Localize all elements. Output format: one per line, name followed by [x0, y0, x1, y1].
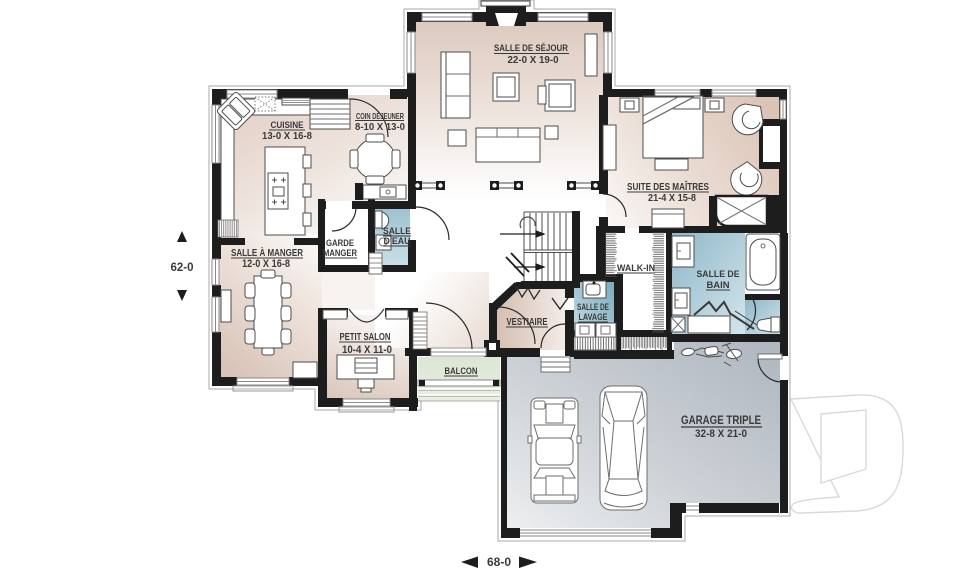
svg-text:SUITE DES MAÎTRES: SUITE DES MAÎTRES: [627, 180, 709, 193]
svg-text:22-0 X 19-0: 22-0 X 19-0: [508, 55, 559, 66]
svg-text:68-0: 68-0: [487, 555, 511, 569]
svg-text:WALK-IN: WALK-IN: [617, 263, 655, 274]
svg-text:VESTIAIRE: VESTIAIRE: [507, 317, 548, 328]
svg-text:PETIT SALON: PETIT SALON: [340, 332, 391, 343]
svg-text:10-4 X 11-0: 10-4 X 11-0: [342, 344, 392, 356]
svg-text:GARDE: GARDE: [326, 238, 354, 248]
svg-text:MANGER: MANGER: [323, 248, 357, 258]
svg-text:32-8 X 21-0: 32-8 X 21-0: [695, 428, 747, 440]
svg-text:SALLE DE: SALLE DE: [697, 269, 740, 280]
svg-text:SALLE: SALLE: [383, 226, 411, 236]
svg-text:21-4 X 15-8: 21-4 X 15-8: [648, 193, 696, 204]
svg-text:D'EAU: D'EAU: [384, 236, 411, 246]
svg-text:BALCON: BALCON: [445, 366, 478, 377]
svg-text:12-0 X 16-8: 12-0 X 16-8: [242, 258, 290, 270]
svg-text:BAIN: BAIN: [707, 280, 730, 291]
svg-text:COIN DÉJEUNER: COIN DÉJEUNER: [356, 111, 404, 121]
svg-text:SALLE DE SÉJOUR: SALLE DE SÉJOUR: [494, 43, 568, 54]
svg-text:SALLE DE: SALLE DE: [577, 302, 609, 312]
svg-text:13-0 X 16-8: 13-0 X 16-8: [262, 130, 312, 142]
svg-text:GARAGE TRIPLE: GARAGE TRIPLE: [681, 415, 761, 427]
svg-text:62-0: 62-0: [171, 260, 194, 274]
svg-text:LAVAGE: LAVAGE: [579, 312, 608, 322]
svg-text:8-10 X 13-0: 8-10 X 13-0: [355, 121, 405, 133]
